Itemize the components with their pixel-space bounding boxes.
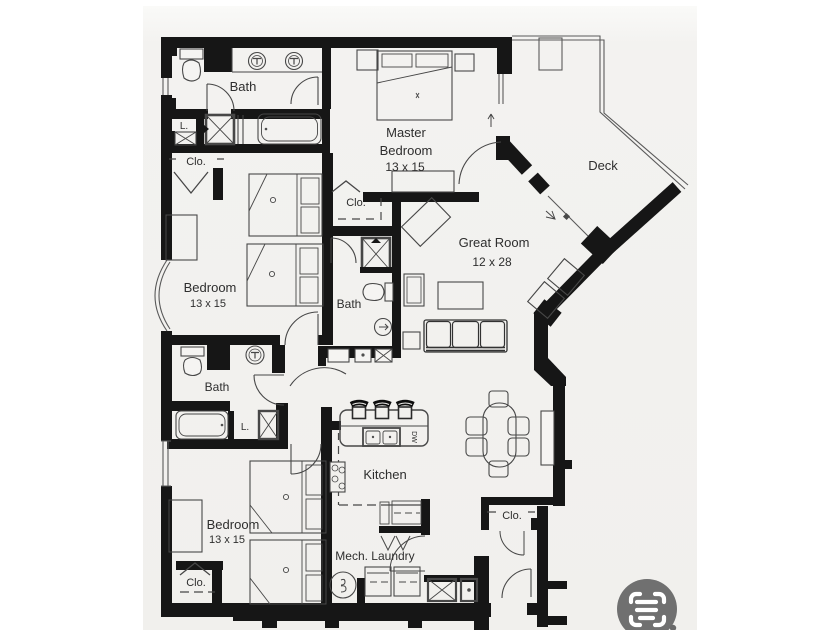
svg-text:Bath: Bath xyxy=(205,380,230,394)
svg-text:12 x 28: 12 x 28 xyxy=(472,255,512,269)
svg-text:Master: Master xyxy=(386,125,426,140)
svg-text:Bath: Bath xyxy=(230,79,257,94)
svg-text:Clo.: Clo. xyxy=(346,197,366,209)
svg-text:Clo.: Clo. xyxy=(186,156,206,168)
svg-text:L.: L. xyxy=(180,121,188,132)
svg-text:Mech. Laundry: Mech. Laundry xyxy=(335,549,414,563)
svg-text:L.: L. xyxy=(241,422,249,433)
svg-text:13 x 15: 13 x 15 xyxy=(190,298,226,310)
svg-text:13 x 15: 13 x 15 xyxy=(209,534,245,546)
svg-text:Clo.: Clo. xyxy=(186,577,206,589)
svg-text:Bath: Bath xyxy=(337,297,362,311)
svg-text:Bedroom: Bedroom xyxy=(207,517,260,532)
svg-text:Bedroom: Bedroom xyxy=(184,280,237,295)
svg-text:13 x 15: 13 x 15 xyxy=(385,160,425,174)
svg-text:Kitchen: Kitchen xyxy=(363,467,406,482)
svg-text:DW: DW xyxy=(410,431,417,443)
svg-text:Deck: Deck xyxy=(588,158,618,173)
svg-text:Great Room: Great Room xyxy=(459,235,530,250)
svg-text:Bedroom: Bedroom xyxy=(380,143,433,158)
svg-text:Clo.: Clo. xyxy=(502,510,522,522)
